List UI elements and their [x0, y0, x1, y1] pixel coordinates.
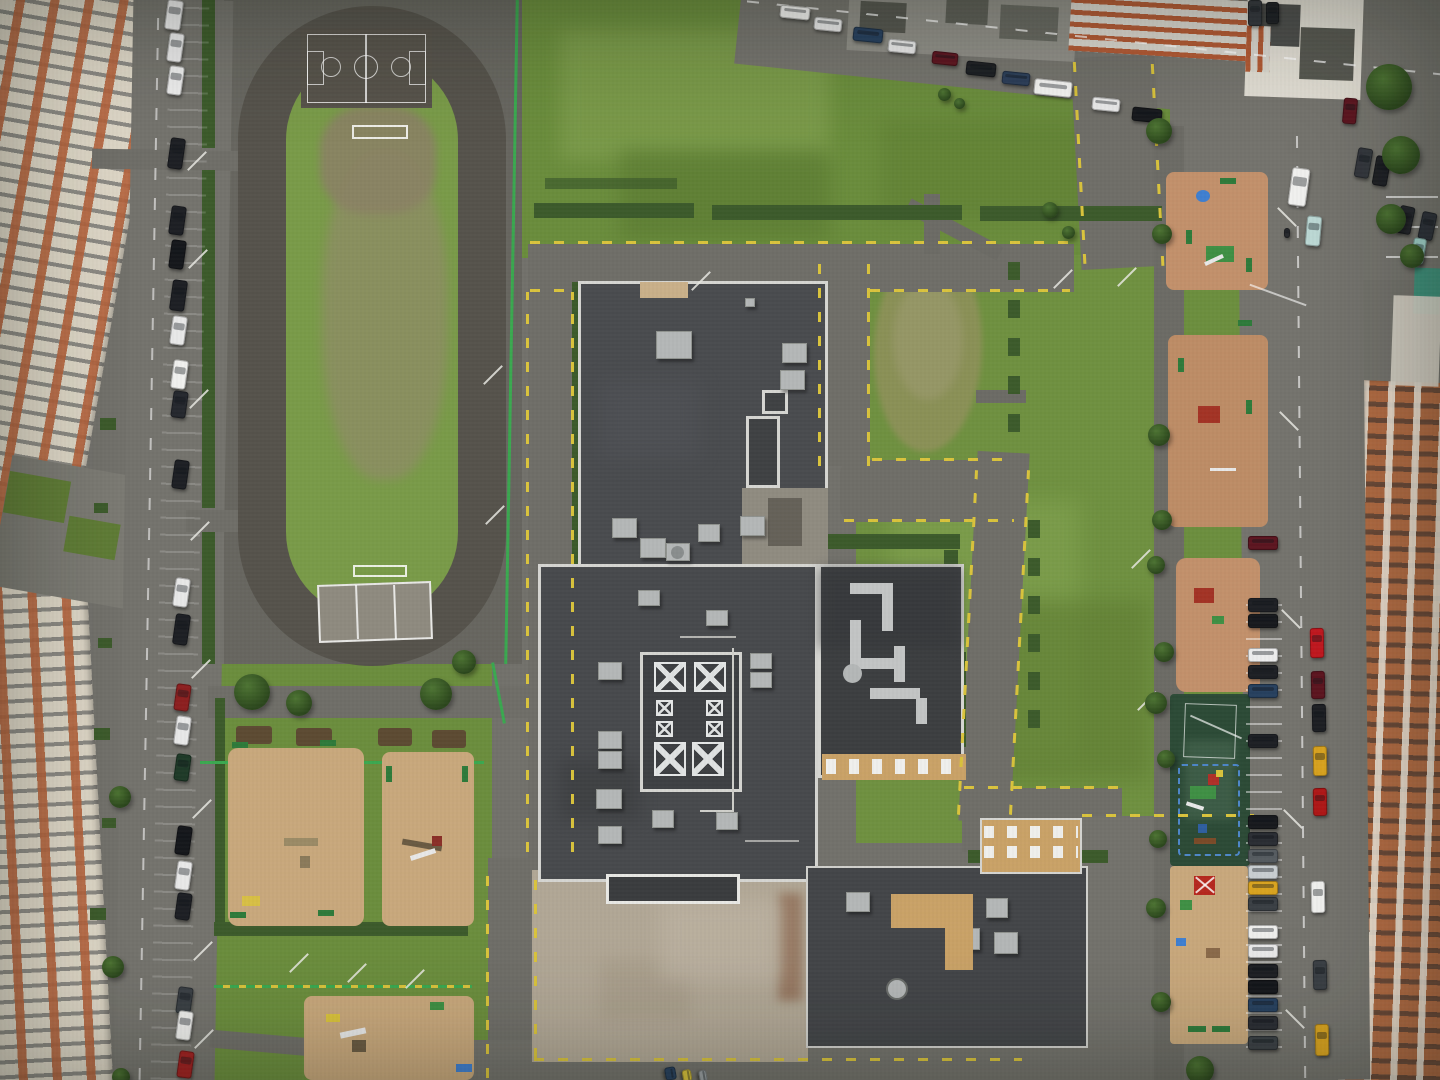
photo-vignette: [0, 0, 1440, 1080]
aerial-photograph: [0, 0, 1440, 1080]
